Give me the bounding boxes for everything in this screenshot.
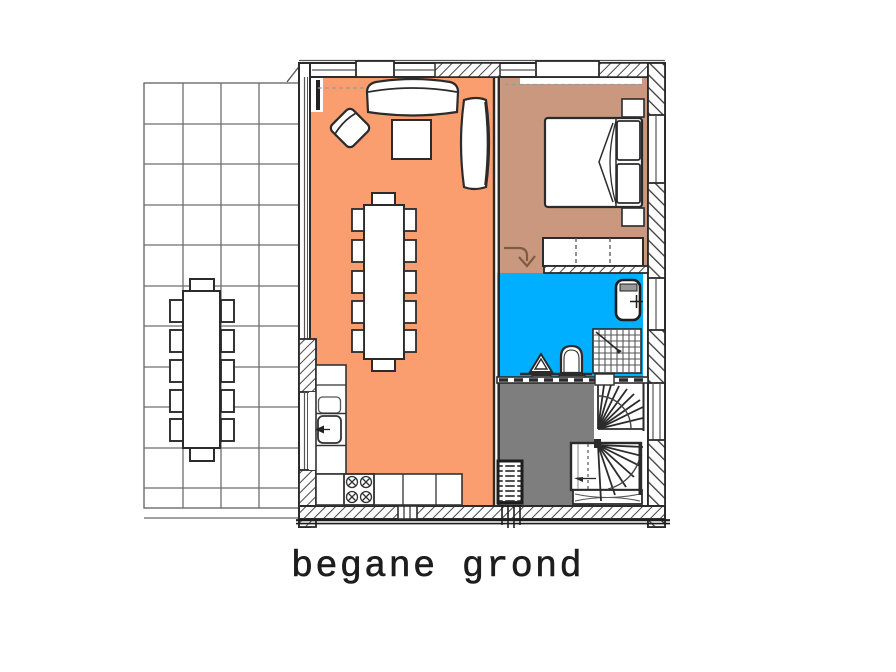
svg-text:begane grond: begane grond — [291, 546, 584, 588]
